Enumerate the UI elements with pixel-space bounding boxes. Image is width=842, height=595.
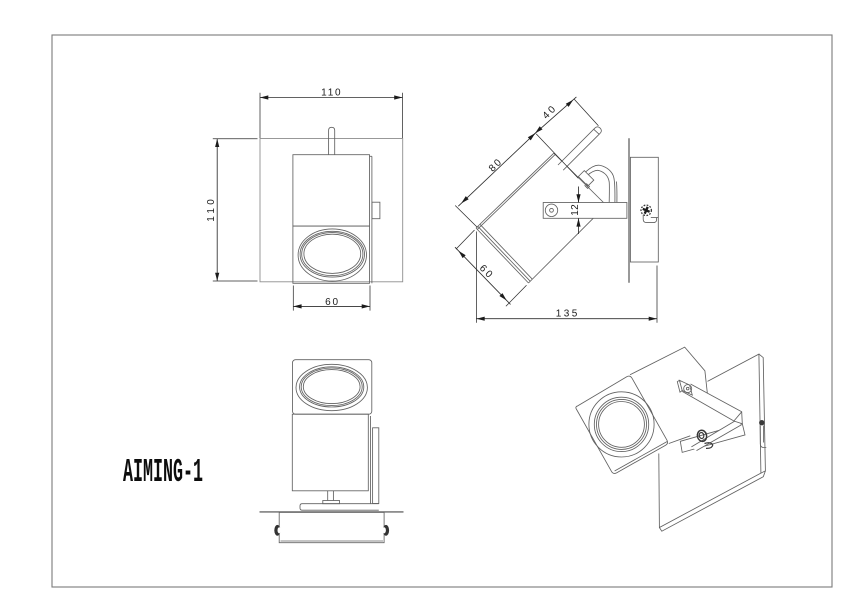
svg-text:60: 60 [325, 297, 338, 308]
svg-text:12: 12 [570, 204, 581, 216]
svg-text:AIMING-1: AIMING-1 [123, 454, 203, 491]
svg-text:135: 135 [556, 309, 578, 320]
svg-text:110: 110 [321, 87, 341, 98]
svg-text:110: 110 [206, 199, 217, 222]
